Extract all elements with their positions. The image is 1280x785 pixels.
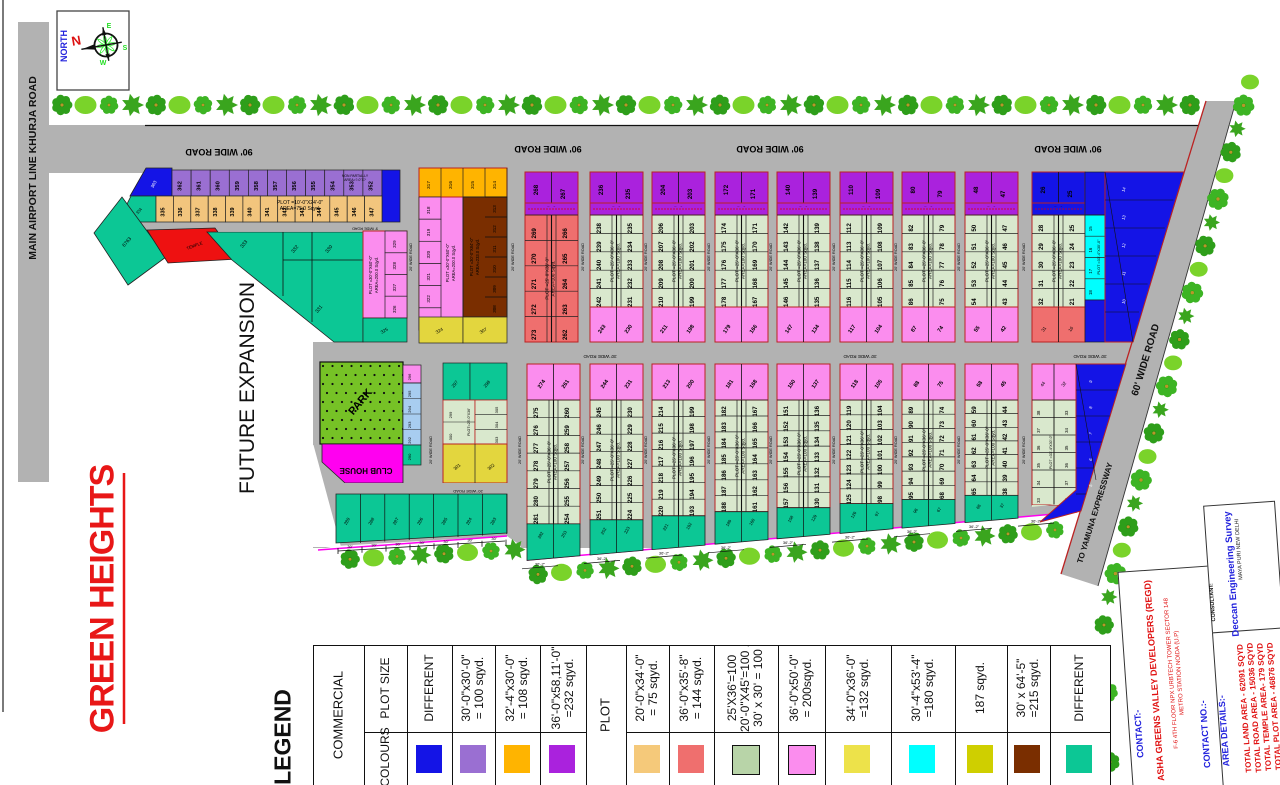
svg-text:362: 362	[178, 181, 184, 191]
svg-text:AREA=100 Sqyd.: AREA=100 Sqyd.	[991, 430, 996, 466]
svg-text:276: 276	[533, 425, 540, 436]
svg-text:36'-2": 36'-2"	[845, 535, 856, 540]
svg-text:109: 109	[877, 222, 884, 233]
svg-text:34: 34	[1064, 428, 1069, 433]
svg-text:20' WIDE ROAD: 20' WIDE ROAD	[453, 489, 483, 494]
svg-text:30': 30'	[347, 544, 352, 549]
svg-text:161: 161	[752, 501, 759, 512]
svg-text:PLOT =25'-0"X36'-0": PLOT =25'-0"X36'-0"	[735, 239, 740, 282]
svg-text:86: 86	[908, 298, 915, 305]
svg-text:153: 153	[783, 436, 790, 447]
svg-text:20' WIDE ROAD: 20' WIDE ROAD	[832, 243, 836, 271]
svg-text:125: 125	[846, 494, 853, 505]
svg-text:207: 207	[658, 241, 665, 252]
svg-text:100: 100	[877, 464, 884, 475]
svg-text:115: 115	[846, 278, 853, 289]
svg-text:29: 29	[1038, 243, 1045, 250]
svg-text:134: 134	[814, 436, 821, 447]
svg-text:218: 218	[658, 472, 665, 483]
svg-text:188: 188	[721, 501, 728, 512]
svg-text:83: 83	[908, 243, 915, 250]
svg-text:← →: ← →	[612, 204, 621, 208]
svg-text:30' WIDE ROAD: 30' WIDE ROAD	[843, 354, 877, 359]
svg-text:193: 193	[689, 505, 696, 516]
svg-text:316: 316	[448, 181, 454, 189]
svg-text:33: 33	[1036, 498, 1041, 503]
svg-text:124: 124	[846, 479, 853, 490]
svg-text:119: 119	[846, 405, 853, 416]
svg-text:167: 167	[752, 406, 759, 417]
svg-text:202: 202	[689, 241, 696, 252]
svg-text:352: 352	[369, 181, 375, 191]
svg-text:28: 28	[1038, 224, 1045, 231]
svg-text:196: 196	[689, 456, 696, 467]
svg-text:61: 61	[971, 433, 978, 440]
svg-text:22: 22	[1069, 279, 1076, 286]
svg-text:204: 204	[660, 184, 667, 195]
svg-text:183: 183	[721, 422, 728, 433]
svg-text:293: 293	[407, 421, 412, 428]
svg-text:46: 46	[1002, 243, 1009, 250]
svg-text:260: 260	[564, 407, 571, 418]
svg-text:290: 290	[407, 453, 412, 460]
svg-text:74: 74	[939, 406, 946, 413]
svg-text:33: 33	[1064, 410, 1069, 415]
svg-text:235: 235	[627, 222, 634, 233]
svg-text:92: 92	[908, 449, 915, 456]
svg-text:CLUB HOUSE: CLUB HOUSE	[339, 466, 393, 475]
svg-text:199: 199	[689, 296, 696, 307]
svg-text:78: 78	[939, 243, 946, 250]
svg-text:227: 227	[627, 458, 634, 469]
svg-text:137: 137	[814, 259, 821, 270]
svg-text:267: 267	[560, 188, 567, 199]
svg-text:136: 136	[814, 405, 821, 416]
svg-text:AREA=100 Sqyd.: AREA=100 Sqyd.	[866, 434, 871, 470]
svg-text:20' WIDE ROAD: 20' WIDE ROAD	[957, 243, 961, 271]
svg-text:166: 166	[752, 422, 759, 433]
svg-text:164: 164	[752, 454, 759, 465]
svg-text:AREA=100 Sqyd.: AREA=100 Sqyd.	[991, 243, 996, 279]
svg-text:236: 236	[598, 184, 605, 195]
svg-text:198: 198	[689, 423, 696, 434]
svg-text:246: 246	[596, 424, 603, 435]
svg-text:210: 210	[658, 296, 665, 307]
svg-text:195: 195	[689, 472, 696, 483]
svg-text:199: 199	[689, 406, 696, 417]
svg-text:25: 25	[1067, 190, 1074, 197]
svg-text:106: 106	[877, 278, 884, 289]
svg-text:PLOT =25'-0"X36'-0": PLOT =25'-0"X36'-0"	[672, 436, 677, 479]
svg-text:206: 206	[658, 222, 665, 233]
svg-text:90' WIDE ROAD: 90' WIDE ROAD	[736, 144, 804, 154]
svg-text:165: 165	[752, 438, 759, 449]
svg-text:59: 59	[971, 406, 978, 413]
svg-text:← →: ← →	[737, 204, 746, 208]
svg-text:PLOT =25'-0"X36'-0": PLOT =25'-0"X36'-0"	[735, 434, 740, 477]
svg-text:AREA=100 Sqyd.: AREA=100 Sqyd.	[866, 243, 871, 279]
svg-text:AREA=100 Sqyd.: AREA=100 Sqyd.	[1058, 243, 1063, 279]
svg-text:168: 168	[752, 278, 759, 289]
svg-text:82: 82	[908, 224, 915, 231]
svg-text:54: 54	[971, 298, 978, 305]
svg-text:279: 279	[533, 478, 540, 489]
svg-text:69: 69	[939, 477, 946, 484]
svg-text:← →: ← →	[862, 204, 871, 208]
svg-text:194: 194	[689, 489, 696, 500]
svg-text:304: 304	[494, 421, 499, 428]
svg-text:90' WIDE ROAD: 90' WIDE ROAD	[514, 144, 582, 154]
svg-text:PLOT =25'-0"X36'-0": PLOT =25'-0"X36'-0"	[797, 432, 802, 475]
svg-text:152: 152	[783, 421, 790, 432]
svg-text:268: 268	[533, 184, 540, 195]
svg-text:AREA=100 Sqyd.: AREA=100 Sqyd.	[928, 243, 933, 279]
svg-text:20' WIDE ROAD: 20' WIDE ROAD	[769, 436, 773, 464]
svg-text:70: 70	[939, 463, 946, 470]
svg-text:31: 31	[1038, 279, 1045, 286]
svg-text:308: 308	[492, 305, 497, 313]
svg-text:312: 312	[492, 225, 497, 233]
svg-text:AREA=200.0 Sqyd.: AREA=200.0 Sqyd.	[374, 257, 379, 293]
svg-text:47: 47	[1000, 190, 1007, 197]
svg-text:123: 123	[846, 464, 853, 475]
svg-text:121: 121	[846, 434, 853, 445]
svg-text:PLOT =30'-0"X84'-0": PLOT =30'-0"X84'-0"	[469, 237, 474, 276]
svg-text:339: 339	[230, 207, 236, 216]
svg-text:135: 135	[814, 421, 821, 432]
svg-text:208: 208	[658, 259, 665, 270]
svg-text:209: 209	[658, 278, 665, 289]
svg-text:311: 311	[492, 245, 497, 253]
svg-text:64: 64	[971, 474, 978, 481]
svg-text:275: 275	[533, 407, 540, 418]
svg-text:20' WIDE ROAD: 20' WIDE ROAD	[644, 436, 648, 464]
svg-text:35: 35	[1064, 445, 1069, 450]
svg-text:PLOT =25'-0"X36'-0": PLOT =25'-0"X36'-0"	[922, 239, 927, 282]
svg-text:43: 43	[1002, 298, 1009, 305]
svg-text:47: 47	[1002, 224, 1009, 231]
svg-text:281: 281	[533, 513, 540, 524]
svg-text:122: 122	[846, 449, 853, 460]
svg-text:130: 130	[814, 498, 821, 509]
svg-text:W: W	[100, 60, 107, 67]
svg-text:AREA=100 Sqyd.: AREA=100 Sqyd.	[616, 442, 621, 478]
svg-text:62: 62	[971, 447, 978, 454]
svg-text:72: 72	[939, 435, 946, 442]
svg-text:326: 326	[392, 305, 397, 313]
svg-text:20' WIDE ROAD: 20' WIDE ROAD	[409, 243, 413, 271]
svg-text:337: 337	[196, 207, 202, 216]
svg-text:77: 77	[939, 261, 946, 268]
svg-text:356: 356	[292, 180, 298, 190]
svg-text:20' WIDE ROAD: 20' WIDE ROAD	[511, 243, 515, 271]
svg-text:296: 296	[407, 373, 412, 380]
svg-text:174: 174	[721, 222, 728, 233]
svg-text:347: 347	[369, 207, 375, 216]
svg-text:94: 94	[908, 477, 915, 484]
svg-text:30': 30'	[491, 536, 496, 541]
svg-text:264: 264	[562, 278, 569, 289]
svg-text:146: 146	[783, 296, 790, 307]
svg-text:303: 303	[494, 436, 499, 443]
svg-text:36'-2": 36'-2"	[783, 540, 794, 545]
svg-text:262: 262	[562, 329, 569, 340]
svg-text:← →: ← →	[924, 204, 933, 208]
svg-text:40: 40	[1002, 460, 1009, 467]
svg-text:98: 98	[877, 495, 884, 502]
svg-text:79: 79	[937, 190, 944, 197]
svg-text:73: 73	[939, 421, 946, 428]
svg-text:300: 300	[448, 433, 453, 440]
svg-text:135: 135	[814, 296, 821, 307]
svg-text:AREA=100 Sqyd.: AREA=100 Sqyd.	[741, 243, 746, 279]
svg-text:359: 359	[235, 180, 241, 190]
svg-text:254: 254	[564, 513, 571, 524]
svg-text:340: 340	[248, 207, 254, 216]
svg-text:143: 143	[783, 241, 790, 252]
svg-text:36'-2": 36'-2"	[969, 524, 980, 529]
svg-text:30': 30'	[395, 541, 400, 546]
svg-text:24: 24	[1069, 243, 1076, 250]
svg-text:154: 154	[783, 451, 790, 462]
svg-text:9' WIDE ROAD: 9' WIDE ROAD	[352, 227, 378, 231]
svg-text:AREA=100 Sqyd.: AREA=100 Sqyd.	[678, 243, 683, 279]
svg-text:20' WIDE ROAD: 20' WIDE ROAD	[894, 436, 898, 464]
svg-text:← →: ← →	[987, 204, 996, 208]
svg-text:186: 186	[721, 470, 728, 481]
svg-text:245: 245	[596, 407, 603, 418]
svg-text:233: 233	[627, 259, 634, 270]
svg-text:← →: ← →	[1054, 204, 1063, 208]
svg-text:139: 139	[812, 188, 819, 199]
svg-text:AREA=100 Sqyd.: AREA=100 Sqyd.	[803, 243, 808, 279]
svg-text:84: 84	[908, 261, 915, 268]
svg-text:317: 317	[426, 181, 432, 189]
svg-text:280: 280	[533, 495, 540, 506]
svg-text:329: 329	[392, 240, 397, 248]
svg-text:20' WIDE ROAD: 20' WIDE ROAD	[1022, 436, 1026, 464]
svg-text:327: 327	[392, 283, 397, 291]
svg-text:20' WIDE ROAD: 20' WIDE ROAD	[581, 243, 585, 271]
svg-text:44: 44	[1002, 406, 1009, 413]
svg-text:PLOT =25'-0"X36'-0": PLOT =25'-0"X36'-0"	[610, 438, 615, 481]
svg-text:20' WIDE ROAD: 20' WIDE ROAD	[581, 436, 585, 464]
svg-text:PLOT =33'-4"X30'-0": PLOT =33'-4"X30'-0"	[1049, 434, 1053, 469]
svg-text:17: 17	[1088, 268, 1093, 273]
svg-text:52: 52	[971, 261, 978, 268]
svg-text:PLOT =30'-0"X60'-0": PLOT =30'-0"X60'-0"	[445, 243, 450, 282]
svg-text:25: 25	[1069, 224, 1076, 231]
svg-text:355: 355	[311, 180, 317, 190]
svg-text:18: 18	[1088, 290, 1093, 295]
svg-text:21: 21	[1069, 298, 1076, 305]
svg-text:272: 272	[531, 304, 538, 315]
svg-text:50: 50	[971, 224, 978, 231]
svg-text:109: 109	[875, 188, 882, 199]
svg-text:PLOT =25'-0"X36'-0": PLOT =25'-0"X36'-0"	[860, 430, 865, 473]
svg-text:338: 338	[213, 207, 219, 216]
svg-text:360: 360	[216, 181, 222, 191]
svg-text:278: 278	[533, 460, 540, 471]
svg-text:178: 178	[721, 296, 728, 307]
svg-text:219: 219	[658, 489, 665, 500]
svg-text:37: 37	[1036, 428, 1041, 433]
svg-text:89: 89	[908, 406, 915, 413]
svg-text:157: 157	[783, 498, 790, 509]
svg-text:269: 269	[531, 228, 538, 239]
svg-text:79: 79	[939, 224, 946, 231]
svg-text:AREA=233.0 Sqyd.: AREA=233.0 Sqyd.	[475, 239, 480, 275]
svg-text:30' WIDE ROAD: 30' WIDE ROAD	[583, 354, 617, 359]
svg-text:34: 34	[1036, 480, 1041, 485]
svg-text:142: 142	[783, 222, 790, 233]
svg-text:36'-2": 36'-2"	[597, 556, 608, 561]
svg-text:36'-2": 36'-2"	[721, 545, 732, 550]
svg-text:45: 45	[1002, 261, 1009, 268]
svg-text:30: 30	[1038, 261, 1045, 268]
svg-text:263: 263	[562, 304, 569, 315]
svg-text:294: 294	[407, 405, 412, 412]
svg-text:PLOT=25'-0"X36': PLOT=25'-0"X36'	[467, 408, 471, 436]
svg-text:91: 91	[908, 435, 915, 442]
svg-text:113: 113	[846, 241, 853, 252]
svg-text:← →: ← →	[674, 204, 683, 208]
svg-text:44: 44	[1002, 279, 1009, 286]
svg-text:171: 171	[750, 188, 757, 199]
svg-text:215: 215	[658, 423, 665, 434]
svg-text:80: 80	[910, 186, 917, 193]
svg-text:176: 176	[721, 259, 728, 270]
svg-text:255: 255	[564, 495, 571, 506]
svg-text:90' WIDE ROAD: 90' WIDE ROAD	[1034, 144, 1102, 154]
svg-text:345: 345	[335, 207, 341, 216]
svg-text:20' WIDE ROAD: 20' WIDE ROAD	[769, 243, 773, 271]
svg-text:20' WIDE ROAD: 20' WIDE ROAD	[518, 436, 522, 464]
svg-text:259: 259	[564, 425, 571, 436]
svg-text:216: 216	[658, 439, 665, 450]
svg-text:170: 170	[752, 241, 759, 252]
svg-text:PLOT =25'-0"X36'-0": PLOT =25'-0"X36'-0"	[1052, 239, 1057, 282]
svg-text:PLOT =25'-0"X36'-0": PLOT =25'-0"X36'-0"	[610, 239, 615, 282]
svg-text:201: 201	[689, 259, 696, 270]
svg-text:258: 258	[564, 442, 571, 453]
svg-text:30': 30'	[443, 539, 448, 544]
svg-text:358: 358	[254, 180, 260, 190]
svg-text:30': 30'	[467, 538, 472, 543]
svg-text:184: 184	[721, 438, 728, 449]
svg-text:104: 104	[877, 405, 884, 416]
svg-text:229: 229	[627, 424, 634, 435]
svg-text:185: 185	[721, 454, 728, 465]
svg-text:299: 299	[448, 411, 453, 418]
svg-text:AREA=75.0 Sqyd.: AREA=75.0 Sqyd.	[280, 206, 320, 212]
svg-text:76: 76	[939, 279, 946, 286]
svg-text:239: 239	[596, 241, 603, 252]
svg-text:20' WIDE ROAD: 20' WIDE ROAD	[429, 436, 433, 464]
svg-text:217: 217	[658, 456, 665, 467]
svg-text:248: 248	[596, 458, 603, 469]
svg-text:232: 232	[627, 278, 634, 289]
svg-text:136: 136	[814, 278, 821, 289]
svg-text:43: 43	[1002, 419, 1009, 426]
svg-text:114: 114	[846, 259, 853, 270]
svg-text:251: 251	[596, 509, 603, 520]
svg-text:271: 271	[531, 278, 538, 289]
svg-text:48: 48	[973, 186, 980, 193]
svg-text:156: 156	[783, 482, 790, 493]
svg-text:361: 361	[197, 180, 203, 190]
svg-text:277: 277	[533, 442, 540, 453]
svg-text:42: 42	[1002, 433, 1009, 440]
svg-text:225: 225	[627, 492, 634, 503]
svg-text:AREA=100 Sqyd.: AREA=100 Sqyd.	[803, 436, 808, 472]
svg-text:305: 305	[494, 406, 499, 413]
svg-text:101: 101	[877, 449, 884, 460]
svg-text:20' WIDE ROAD: 20' WIDE ROAD	[957, 436, 961, 464]
svg-text:AREA=100 Sqyd.: AREA=100 Sqyd.	[928, 432, 933, 468]
svg-text:140: 140	[785, 184, 792, 195]
svg-text:20' WIDE ROAD: 20' WIDE ROAD	[707, 243, 711, 271]
svg-text:90: 90	[908, 421, 915, 428]
svg-text:256: 256	[564, 478, 571, 489]
svg-text:AREA=100 Sqyd.: AREA=100 Sqyd.	[551, 261, 556, 297]
svg-text:26: 26	[1040, 186, 1047, 193]
svg-text:132: 132	[814, 467, 821, 478]
svg-text:328: 328	[392, 262, 397, 270]
svg-text:← →: ← →	[799, 204, 808, 208]
svg-text:155: 155	[783, 467, 790, 478]
svg-text:266: 266	[562, 228, 569, 239]
svg-text:PLOT =25'-0"X36'-0": PLOT =25'-0"X36'-0"	[922, 428, 927, 471]
svg-text:36'-2": 36'-2"	[907, 529, 918, 534]
svg-text:313: 313	[492, 205, 497, 213]
svg-text:273: 273	[531, 329, 538, 340]
svg-text:36'-2": 36'-2"	[659, 551, 670, 556]
svg-text:16: 16	[1088, 247, 1093, 252]
svg-text:20' WIDE ROAD: 20' WIDE ROAD	[644, 243, 648, 271]
svg-text:38: 38	[1002, 488, 1009, 495]
svg-text:234: 234	[627, 241, 634, 252]
svg-text:220: 220	[658, 505, 665, 516]
svg-text:322: 322	[426, 295, 431, 303]
svg-text:20' WIDE ROAD: 20' WIDE ROAD	[894, 243, 898, 271]
svg-text:310: 310	[492, 265, 497, 273]
svg-text:292: 292	[407, 436, 412, 443]
svg-text:116: 116	[846, 296, 853, 307]
svg-text:139: 139	[814, 222, 821, 233]
svg-text:36: 36	[1064, 463, 1069, 468]
svg-text:PLOT =25'-0"X36'-0": PLOT =25'-0"X36'-0"	[672, 239, 677, 282]
svg-text:PLOT =25'-0"X36'-0": PLOT =25'-0"X36'-0"	[547, 440, 552, 483]
svg-text:250: 250	[596, 492, 603, 503]
svg-text:AREA=?-0"X?: AREA=?-0"X?	[344, 178, 366, 182]
svg-text:PLOT =25'-0"X36'-0": PLOT =25'-0"X36'-0"	[545, 257, 550, 300]
svg-text:85: 85	[908, 279, 915, 286]
svg-text:38: 38	[1036, 410, 1041, 415]
svg-text:177: 177	[721, 278, 728, 289]
svg-text:PLOT =30'-0"X60'-0": PLOT =30'-0"X60'-0"	[368, 255, 373, 294]
svg-text:265: 265	[562, 253, 569, 264]
svg-text:E: E	[107, 23, 112, 30]
svg-text:PLOT =33'-4"X30'-0": PLOT =33'-4"X30'-0"	[1097, 239, 1101, 275]
svg-text:169: 169	[752, 259, 759, 270]
svg-text:197: 197	[689, 439, 696, 450]
svg-text:235: 235	[625, 188, 632, 199]
svg-text:PLOT =25'-0"X36'-0": PLOT =25'-0"X36'-0"	[860, 239, 865, 282]
svg-text:172: 172	[723, 184, 730, 195]
svg-text:35: 35	[1036, 463, 1041, 468]
svg-text:53: 53	[971, 279, 978, 286]
